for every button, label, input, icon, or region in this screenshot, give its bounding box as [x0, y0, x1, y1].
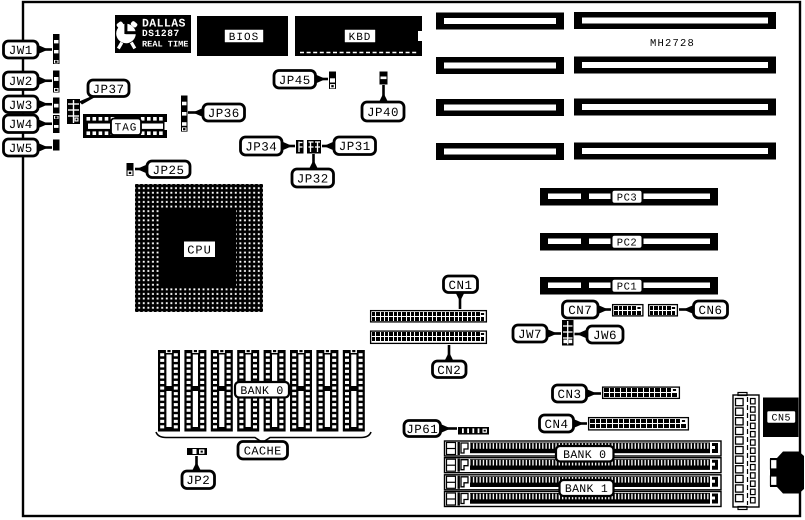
svg-text:CN3: CN3 — [557, 388, 581, 402]
svg-text:JP32: JP32 — [297, 173, 329, 187]
svg-text:JW1: JW1 — [9, 44, 33, 58]
svg-text:JW3: JW3 — [9, 99, 33, 113]
svg-text:JP36: JP36 — [208, 107, 240, 121]
svg-text:REAL TIME: REAL TIME — [142, 40, 188, 50]
svg-text:JW4: JW4 — [9, 118, 33, 132]
svg-text:JW6: JW6 — [593, 329, 617, 343]
svg-text:CN6: CN6 — [698, 304, 722, 318]
svg-text:PC3: PC3 — [617, 193, 637, 205]
svg-text:JP45: JP45 — [279, 74, 311, 88]
svg-text:JW5: JW5 — [9, 142, 33, 156]
svg-text:PC2: PC2 — [617, 238, 637, 250]
svg-text:JP31: JP31 — [339, 140, 371, 154]
svg-text:JP37: JP37 — [92, 83, 124, 97]
svg-text:DS1287: DS1287 — [142, 28, 180, 39]
svg-text:JP25: JP25 — [152, 164, 184, 178]
svg-text:JW7: JW7 — [518, 328, 542, 342]
svg-text:CPU: CPU — [187, 244, 212, 258]
svg-text:CN4: CN4 — [544, 418, 568, 432]
svg-text:MH2728: MH2728 — [650, 38, 695, 50]
svg-text:CN5: CN5 — [771, 414, 791, 425]
svg-text:CN7: CN7 — [568, 304, 592, 318]
svg-text:JP40: JP40 — [367, 106, 399, 120]
svg-text:JP61: JP61 — [406, 423, 438, 437]
svg-text:CACHE: CACHE — [244, 445, 282, 459]
svg-text:CN1: CN1 — [448, 279, 472, 293]
svg-text:TAG: TAG — [115, 123, 138, 135]
svg-text:JP2: JP2 — [186, 474, 210, 488]
svg-text:BIOS: BIOS — [229, 32, 259, 44]
svg-text:JW2: JW2 — [9, 75, 33, 89]
svg-text:JP34: JP34 — [245, 141, 277, 155]
svg-text:PC1: PC1 — [617, 282, 637, 294]
svg-text:BANK 1: BANK 1 — [565, 483, 608, 496]
svg-text:KBD: KBD — [349, 32, 372, 44]
svg-text:BANK 0: BANK 0 — [563, 449, 606, 462]
svg-text:CN2: CN2 — [437, 364, 461, 378]
svg-text:BANK 0: BANK 0 — [240, 385, 283, 398]
